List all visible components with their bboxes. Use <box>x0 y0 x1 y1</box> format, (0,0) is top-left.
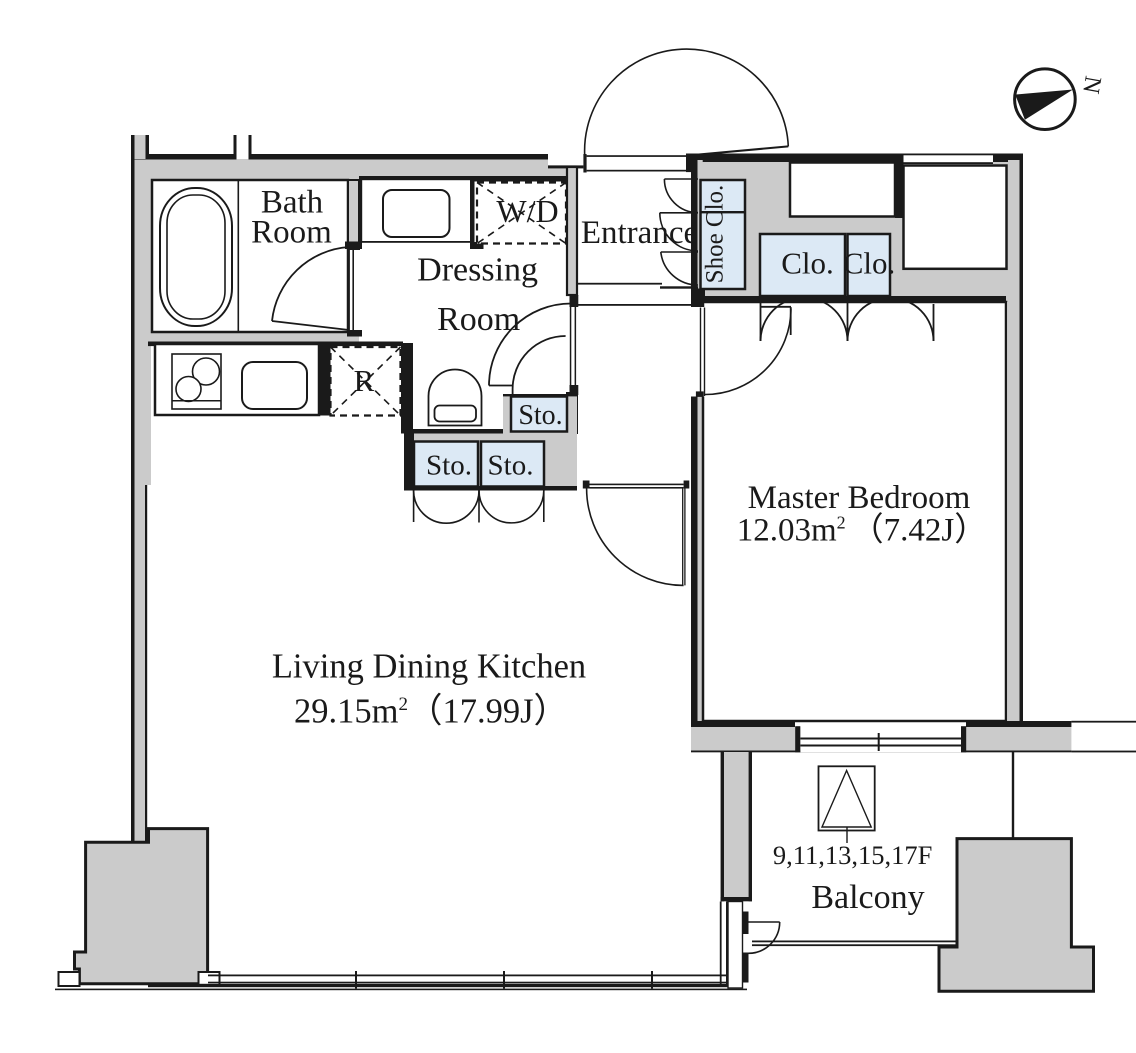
svg-text:Room: Room <box>437 301 520 338</box>
svg-text:Balcony: Balcony <box>811 879 924 916</box>
svg-text:Master Bedroom: Master Bedroom <box>748 480 971 516</box>
svg-text:Clo.: Clo. <box>843 246 896 281</box>
svg-text:Clo.: Clo. <box>781 246 834 281</box>
svg-text:Living Dining Kitchen: Living Dining Kitchen <box>272 648 586 686</box>
svg-text:Sto.: Sto. <box>426 450 472 482</box>
svg-text:9,11,13,15,17F: 9,11,13,15,17F <box>773 840 933 870</box>
svg-text:R: R <box>354 363 375 398</box>
svg-text:12.03m2（7.42J）: 12.03m2（7.42J） <box>737 513 988 549</box>
svg-text:29.15m2（17.99J）: 29.15m2（17.99J） <box>294 693 568 731</box>
svg-text:W/D: W/D <box>496 193 558 229</box>
svg-text:Shoe Clo.: Shoe Clo. <box>702 185 729 284</box>
svg-text:Room: Room <box>251 215 332 251</box>
svg-text:Sto.: Sto. <box>488 450 534 482</box>
svg-text:Entrance: Entrance <box>581 215 698 251</box>
svg-text:Sto.: Sto. <box>518 400 562 431</box>
svg-text:Dressing: Dressing <box>417 252 538 289</box>
